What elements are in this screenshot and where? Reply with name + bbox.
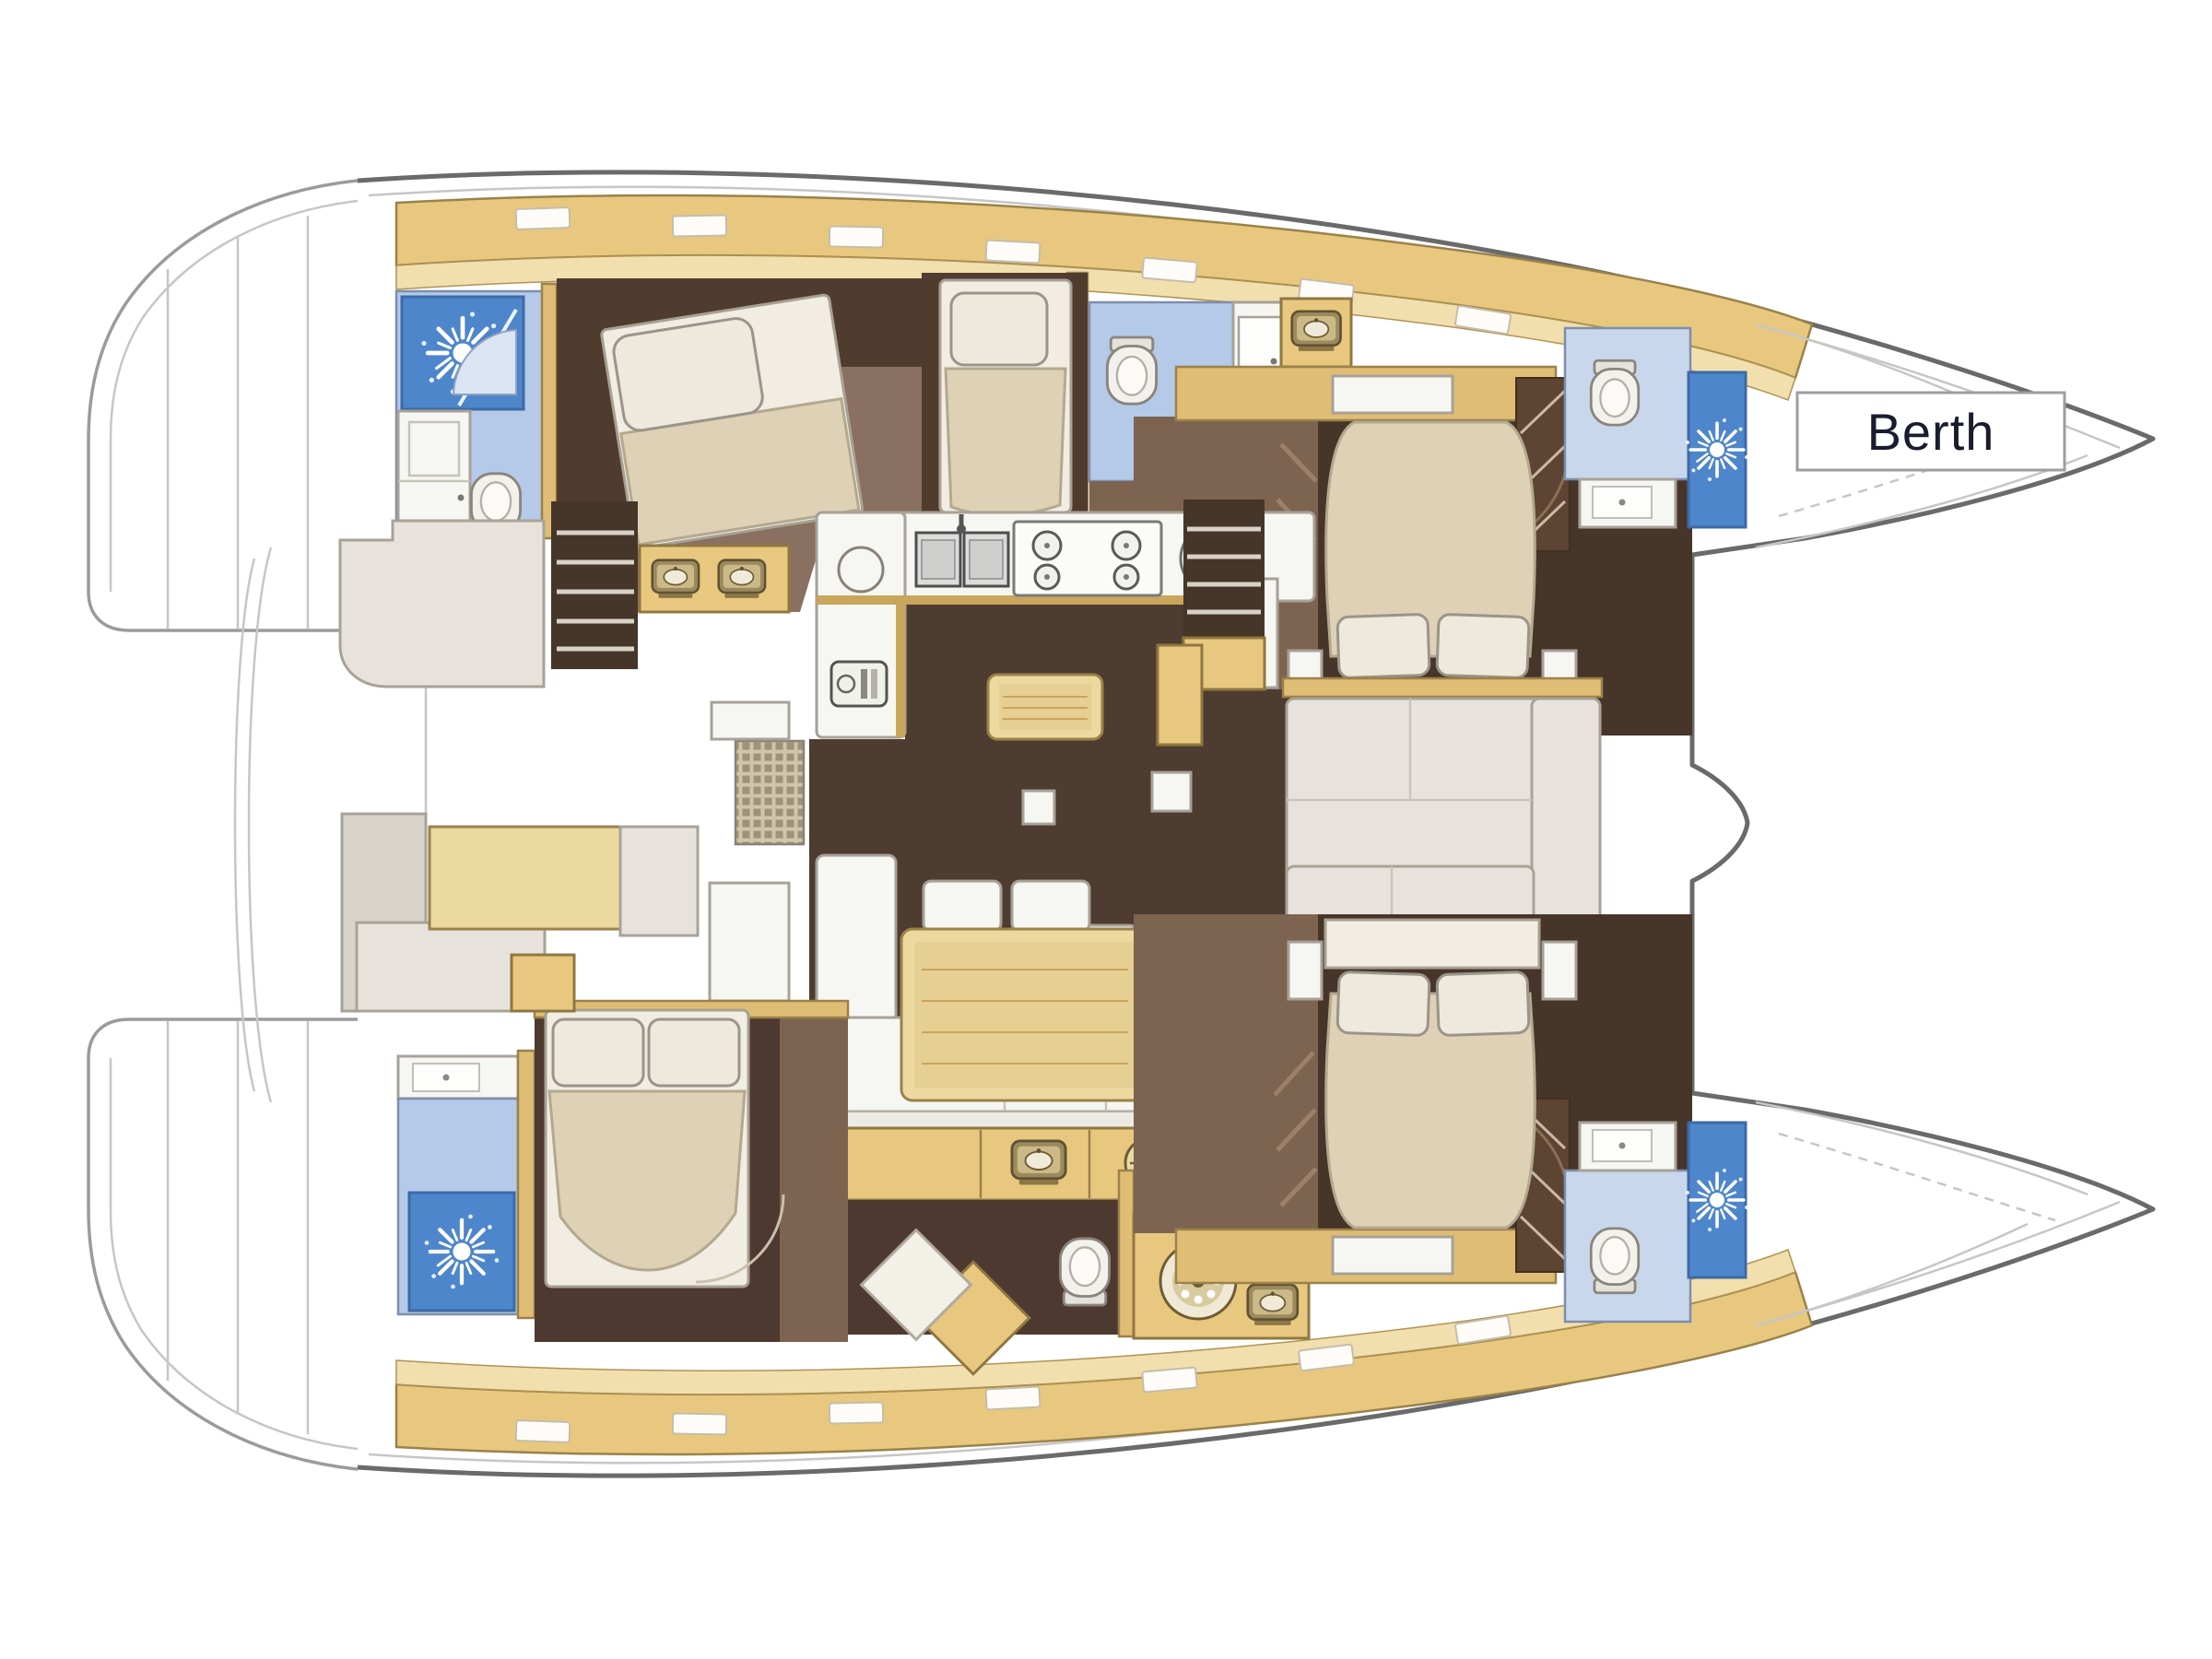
cockpit-table: [429, 827, 620, 929]
cockpit-seat: [712, 702, 789, 739]
cabinet: [1158, 645, 1202, 745]
pillow: [1437, 971, 1529, 1035]
cockpit-bench: [340, 521, 544, 687]
aft-cabin-starboard: [535, 1001, 848, 1342]
island-bed-aft-starboard: [546, 1010, 748, 1287]
aft-head-port: [396, 284, 557, 540]
toilet-icon: [1107, 337, 1156, 404]
pillow: [649, 1019, 739, 1086]
toilet-icon: [1591, 1229, 1639, 1293]
sink-icon: [719, 560, 765, 598]
floorplan-canvas: Berth: [0, 0, 2212, 1659]
bed-frame: [1325, 920, 1539, 968]
bulkhead: [542, 284, 557, 538]
pillow: [951, 293, 1047, 365]
floor-grate: [735, 741, 804, 844]
coffee-table: [988, 675, 1102, 739]
stern-steps-starboard: [88, 1019, 358, 1469]
bulkhead: [1119, 1171, 1134, 1336]
toilet-icon: [1591, 360, 1639, 425]
sink-icon: [1292, 312, 1341, 351]
pillow: [1337, 614, 1430, 677]
sink-icon: [1248, 1285, 1298, 1325]
floor-hatch: [1023, 791, 1054, 824]
sink-icon: [653, 560, 699, 598]
pillow: [1437, 614, 1529, 677]
pillow: [553, 1019, 643, 1086]
nightstand: [1288, 942, 1322, 999]
dishwasher-icon: [831, 662, 887, 706]
pillow: [611, 316, 764, 432]
cockpit-step: [512, 955, 574, 1011]
pillow: [1337, 971, 1430, 1035]
back-cushion: [1012, 881, 1089, 931]
cockpit-seat: [710, 883, 789, 1001]
back-cushion: [924, 881, 1001, 931]
stern-steps-port: [88, 181, 358, 630]
bulkhead: [518, 1051, 535, 1318]
toilet-icon: [1060, 1239, 1109, 1305]
berth-label-text: Berth: [1867, 403, 1995, 461]
stairs-port: [551, 501, 638, 669]
aft-head-starboard: [398, 1051, 535, 1318]
floorplan: Berth: [0, 0, 2212, 1659]
double-bed-angled: [601, 294, 863, 548]
nightstand: [1543, 942, 1576, 999]
mid-berth-port: [922, 273, 1088, 515]
four-burner-stove-icon: [1014, 522, 1161, 595]
sink-icon: [1012, 1141, 1065, 1185]
cockpit-lounge-arm: [620, 827, 698, 935]
